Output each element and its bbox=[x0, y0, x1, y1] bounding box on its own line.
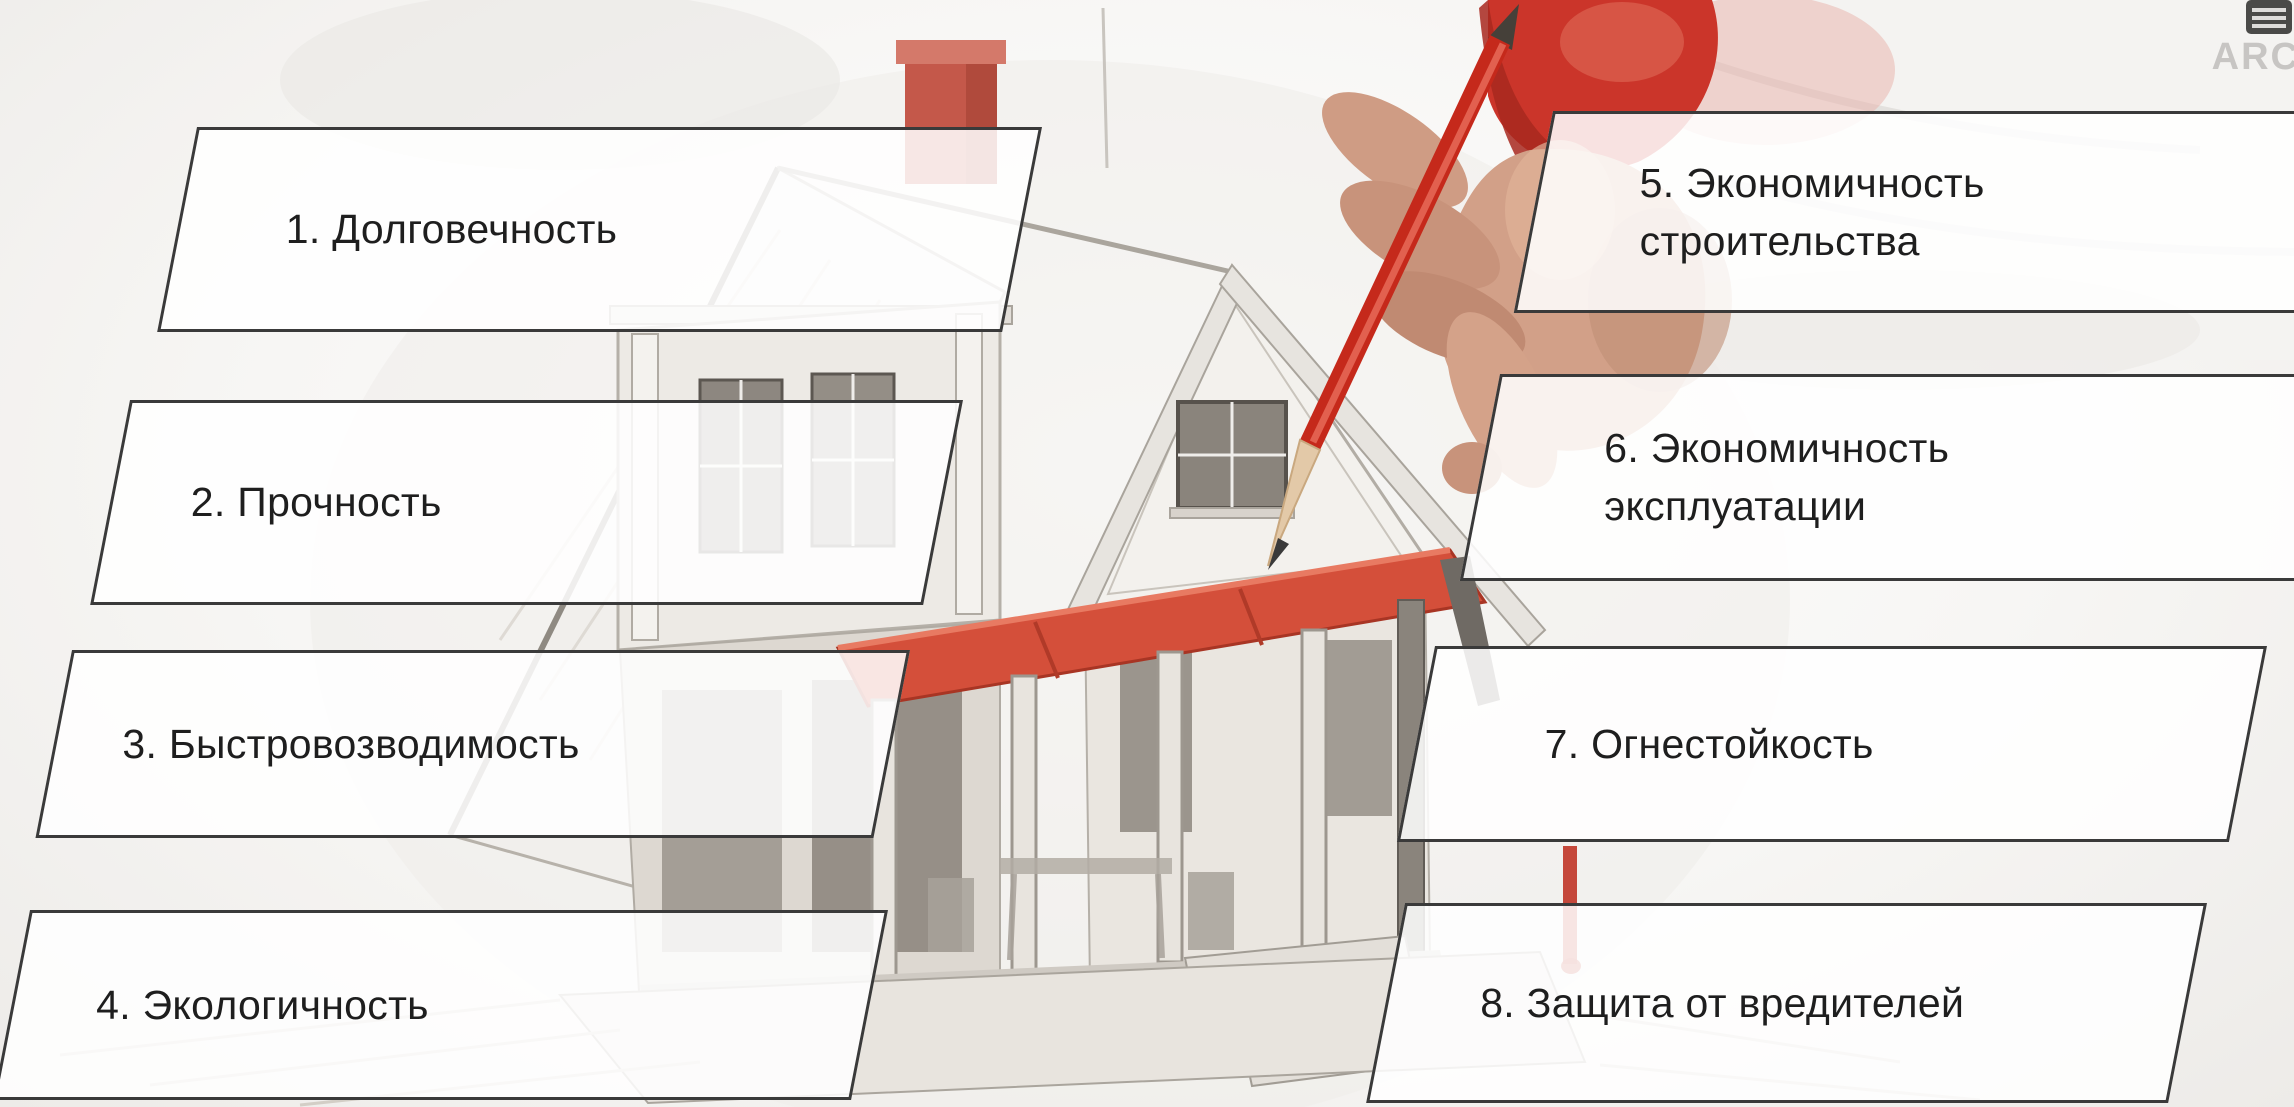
gable-window-2 bbox=[1320, 640, 1392, 816]
feature-label-1: 1. Долговечность bbox=[157, 127, 1042, 332]
feature-label-6: 6. Экономичность эксплуатации bbox=[1460, 374, 2294, 581]
feature-label-4-text: 4. Экологичность bbox=[20, 976, 429, 1034]
watermark: ARC bbox=[2212, 0, 2294, 79]
column-right bbox=[956, 314, 982, 614]
feature-label-6-text: 6. Экономичность эксплуатации bbox=[1494, 419, 1949, 535]
feature-label-2: 2. Прочность bbox=[90, 400, 963, 605]
feature-label-8-text: 8. Защита от вредителей bbox=[1394, 974, 1964, 1032]
feature-label-1-text: 1. Долговечность bbox=[186, 200, 618, 258]
feature-label-3-text: 3. Быстровозводимость bbox=[62, 715, 579, 773]
chimney-cap bbox=[896, 40, 1006, 64]
attic-window bbox=[1170, 402, 1294, 518]
blinds-logo-icon bbox=[2246, 0, 2292, 34]
feature-label-7-text: 7. Огнестойкость bbox=[1425, 715, 1874, 773]
feature-label-7: 7. Огнестойкость bbox=[1397, 646, 2267, 842]
infographic: ARC 1. Долговечность 2. Прочность 3. Быс… bbox=[0, 0, 2294, 1107]
watermark-text: ARC bbox=[2212, 36, 2294, 79]
feature-label-5-text: 5. Экономичность строительства bbox=[1548, 154, 1985, 270]
feature-label-4: 4. Экологичность bbox=[0, 910, 888, 1100]
feature-label-3: 3. Быстровозводимость bbox=[35, 650, 910, 838]
feature-label-8: 8. Защита от вредителей bbox=[1366, 903, 2207, 1103]
feature-label-2-text: 2. Прочность bbox=[119, 473, 442, 531]
feature-label-5: 5. Экономичность строительства bbox=[1514, 111, 2294, 313]
